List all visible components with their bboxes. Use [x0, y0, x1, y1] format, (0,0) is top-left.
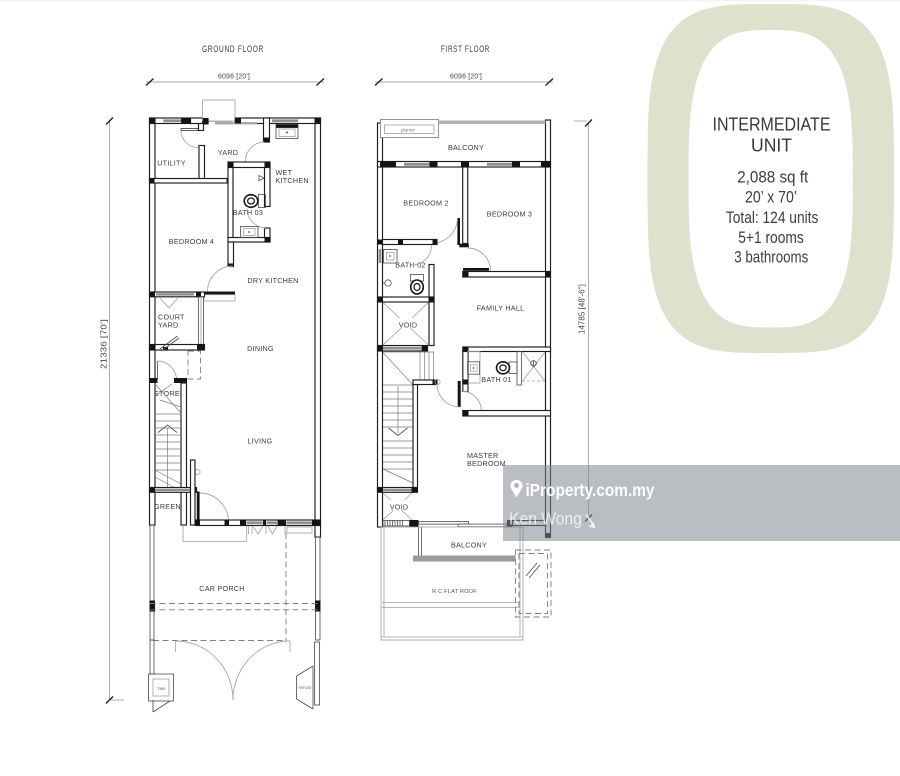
svg-text:FIRST FLOOR: FIRST FLOOR — [441, 44, 490, 54]
svg-text:6096 [20']: 6096 [20'] — [218, 74, 250, 81]
svg-text:14785 [48'-6"]: 14785 [48'-6"] — [577, 284, 587, 334]
svg-text:DINING: DINING — [247, 344, 274, 353]
svg-text:5+1 rooms: 5+1 rooms — [738, 228, 804, 247]
svg-text:planter: planter — [401, 128, 416, 133]
svg-text:BATH 02: BATH 02 — [395, 261, 425, 270]
svg-text:GROUND FLOOR: GROUND FLOOR — [202, 44, 264, 54]
svg-text:REFUSE: REFUSE — [299, 686, 312, 690]
svg-text:BATH 03: BATH 03 — [233, 208, 263, 217]
svg-text:FAMILY HALL: FAMILY HALL — [477, 304, 525, 313]
svg-text:GREEN: GREEN — [154, 502, 181, 511]
svg-text:Ken Wong: Ken Wong — [509, 509, 582, 529]
svg-text:TNB: TNB — [157, 686, 165, 691]
svg-text:BEDROOM 2: BEDROOM 2 — [403, 199, 448, 208]
svg-text:VOID: VOID — [399, 321, 418, 330]
svg-text:21336 [70']: 21336 [70'] — [99, 319, 109, 369]
svg-text:R C FLAT ROOF: R C FLAT ROOF — [432, 589, 477, 595]
svg-text:BALCONY: BALCONY — [448, 143, 484, 152]
svg-text:CAR PORCH: CAR PORCH — [199, 584, 244, 593]
svg-text:6096 [20']: 6096 [20'] — [450, 74, 482, 81]
svg-text:YARD: YARD — [218, 148, 238, 157]
svg-text:2,088 sq ft: 2,088 sq ft — [737, 167, 808, 186]
svg-text:KITCHEN: KITCHEN — [276, 176, 309, 185]
svg-text:BEDROOM 3: BEDROOM 3 — [487, 210, 532, 219]
svg-text:BATH 01: BATH 01 — [481, 375, 511, 384]
svg-text:INTERMEDIATE: INTERMEDIATE — [713, 114, 831, 135]
svg-text:BALCONY: BALCONY — [451, 541, 487, 550]
svg-text:iProperty.com.my: iProperty.com.my — [526, 480, 655, 500]
svg-text:20’ x 70’: 20’ x 70’ — [745, 188, 797, 207]
svg-text:BEDROOM 4: BEDROOM 4 — [169, 237, 214, 246]
svg-text:UTILITY: UTILITY — [157, 159, 186, 168]
svg-text:Total: 124 units: Total: 124 units — [726, 208, 819, 227]
svg-text:VOID: VOID — [390, 503, 409, 512]
svg-text:UNIT: UNIT — [751, 135, 792, 156]
svg-text:YARD: YARD — [158, 321, 178, 330]
svg-text:BEDROOM: BEDROOM — [467, 459, 506, 468]
svg-text:STORE: STORE — [154, 389, 180, 398]
svg-text:DRY KITCHEN: DRY KITCHEN — [247, 276, 298, 285]
svg-text:LIVING: LIVING — [247, 437, 272, 446]
svg-text:3 bathrooms: 3 bathrooms — [734, 247, 808, 266]
